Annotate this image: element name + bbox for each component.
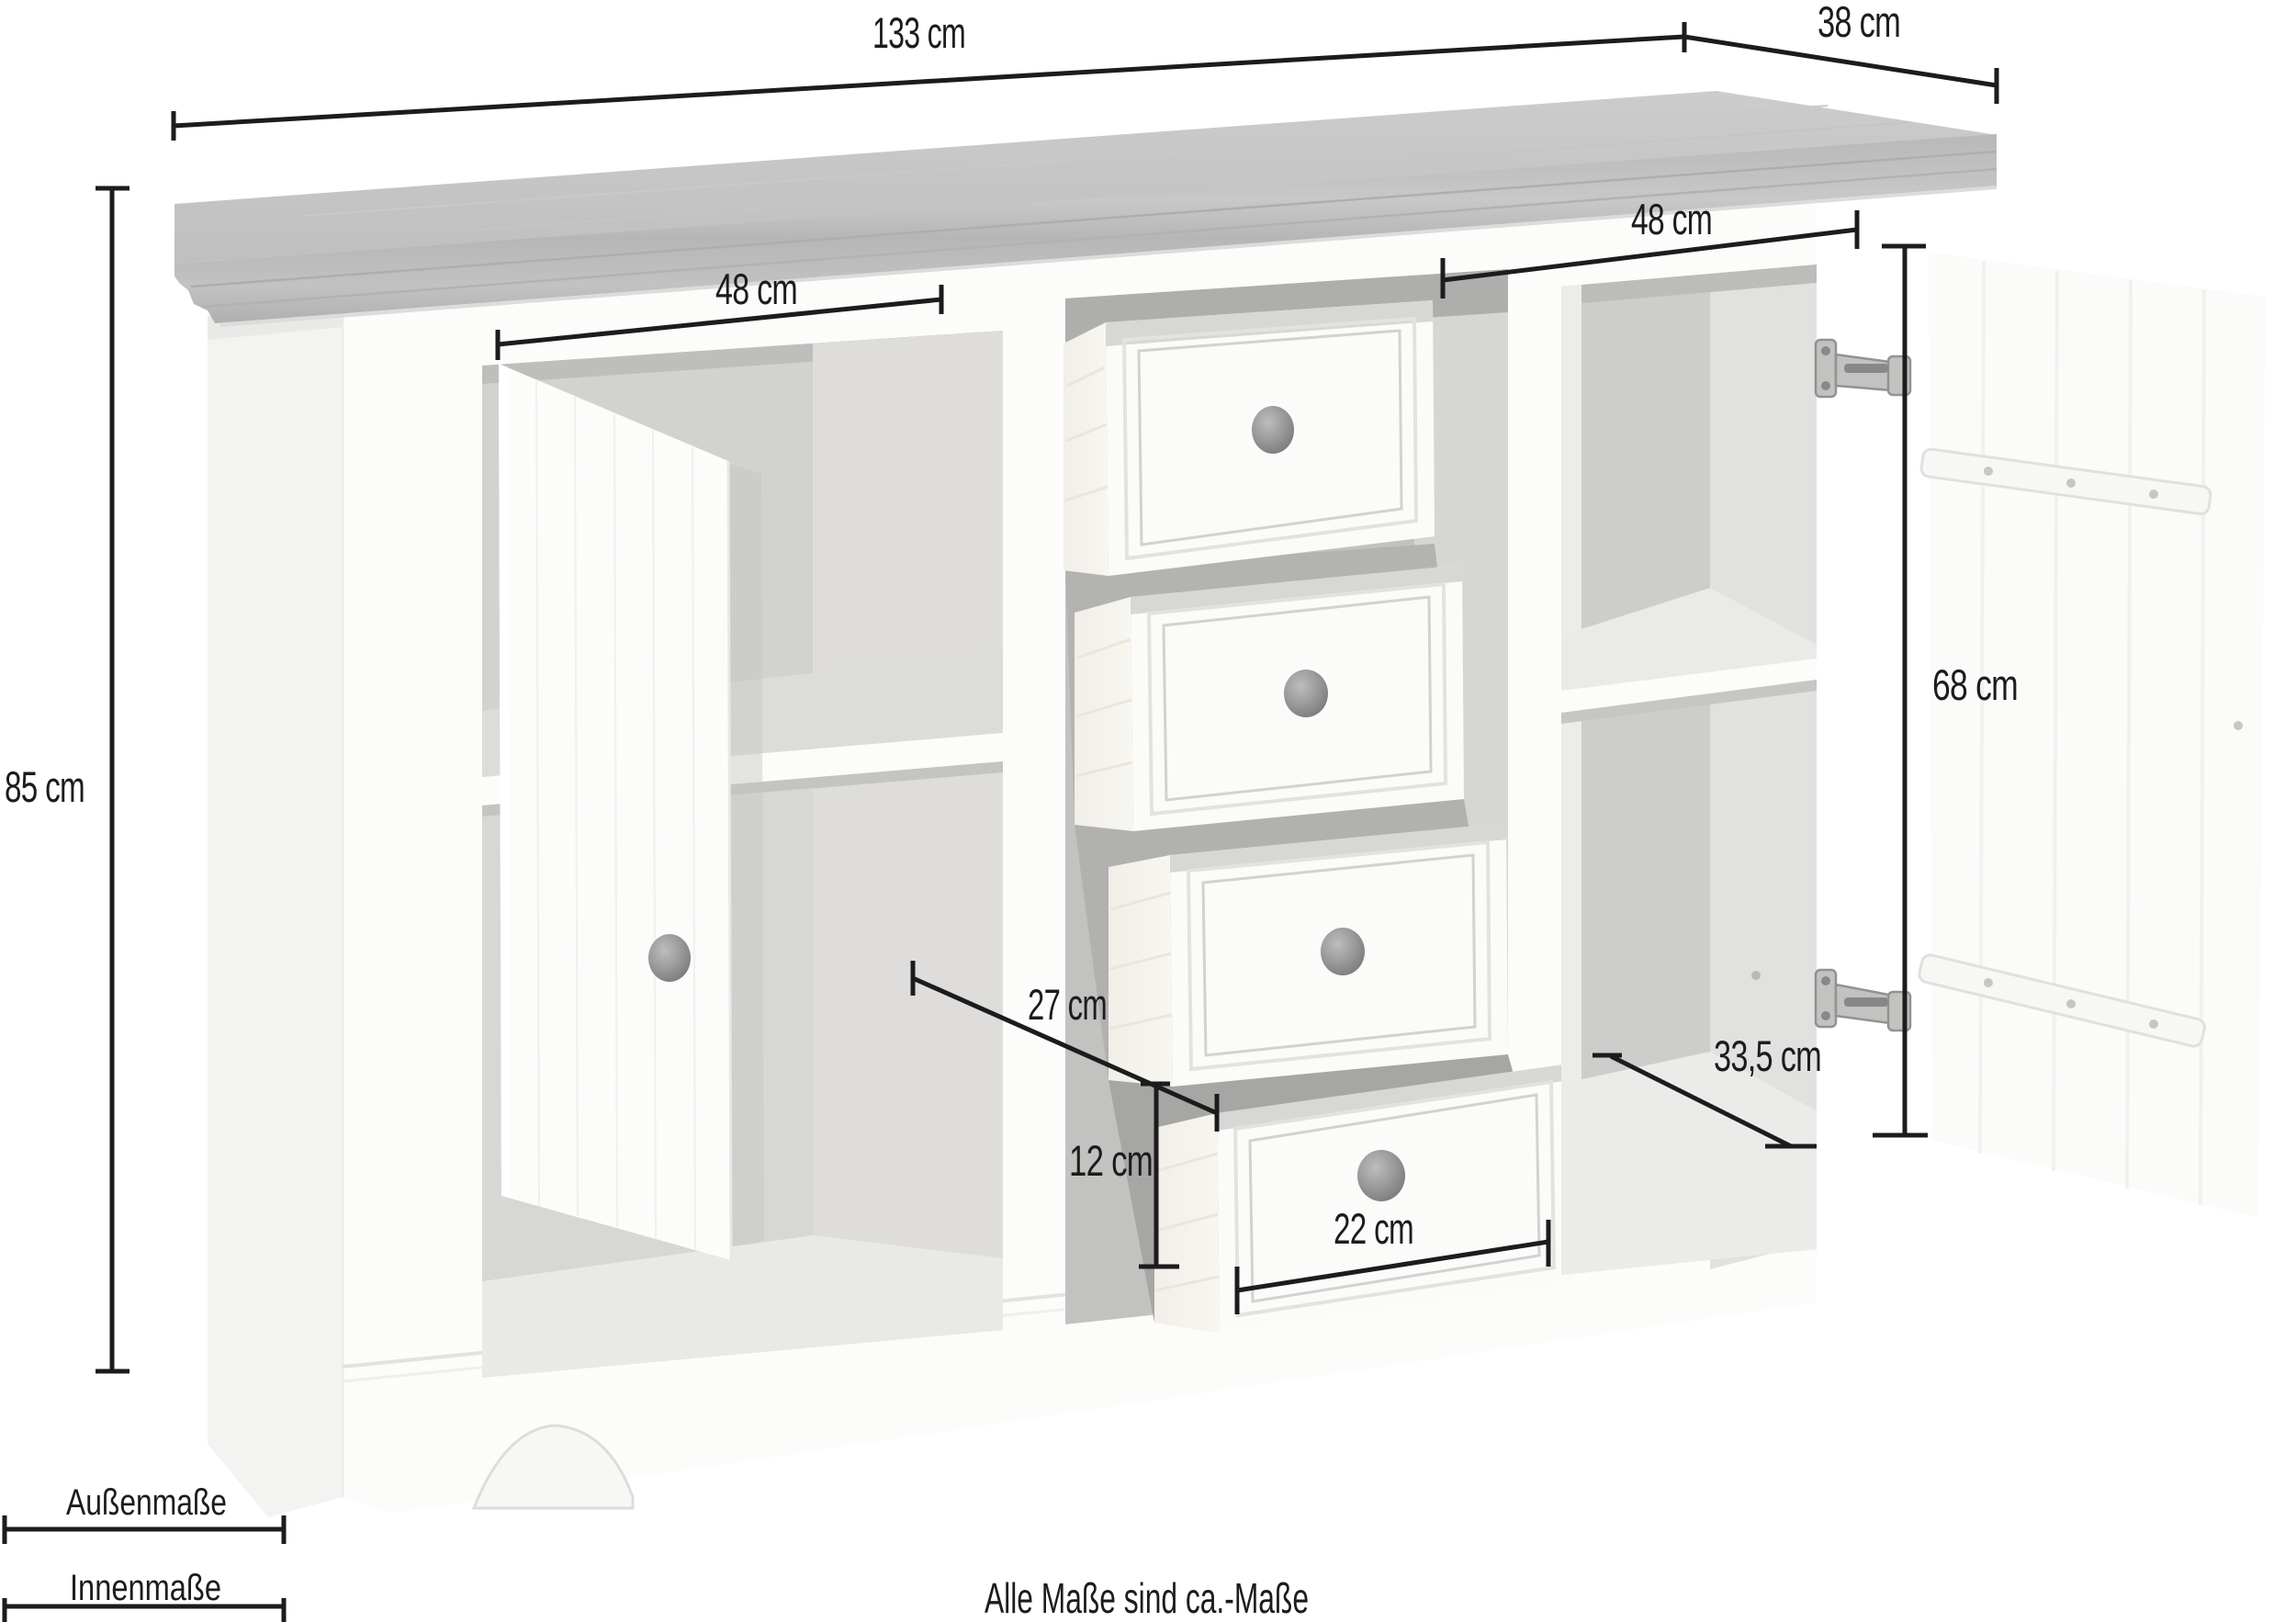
svg-text:48 cm: 48 cm: [715, 265, 797, 313]
svg-text:38 cm: 38 cm: [1818, 0, 1900, 46]
svg-text:22 cm: 22 cm: [1334, 1204, 1413, 1253]
svg-text:Außenmaße: Außenmaße: [66, 1482, 227, 1523]
svg-text:68 cm: 68 cm: [1932, 660, 2018, 709]
svg-text:27 cm: 27 cm: [1028, 980, 1107, 1029]
svg-text:48 cm: 48 cm: [1631, 195, 1712, 243]
svg-text:Alle Maße sind ca.-Maße: Alle Maße sind ca.-Maße: [985, 1574, 1309, 1622]
svg-text:33,5 cm: 33,5 cm: [1714, 1031, 1821, 1080]
svg-text:133 cm: 133 cm: [872, 8, 965, 57]
svg-text:85 cm: 85 cm: [5, 762, 84, 811]
svg-text:Innenmaße: Innenmaße: [70, 1568, 221, 1608]
svg-text:12 cm: 12 cm: [1069, 1136, 1153, 1185]
